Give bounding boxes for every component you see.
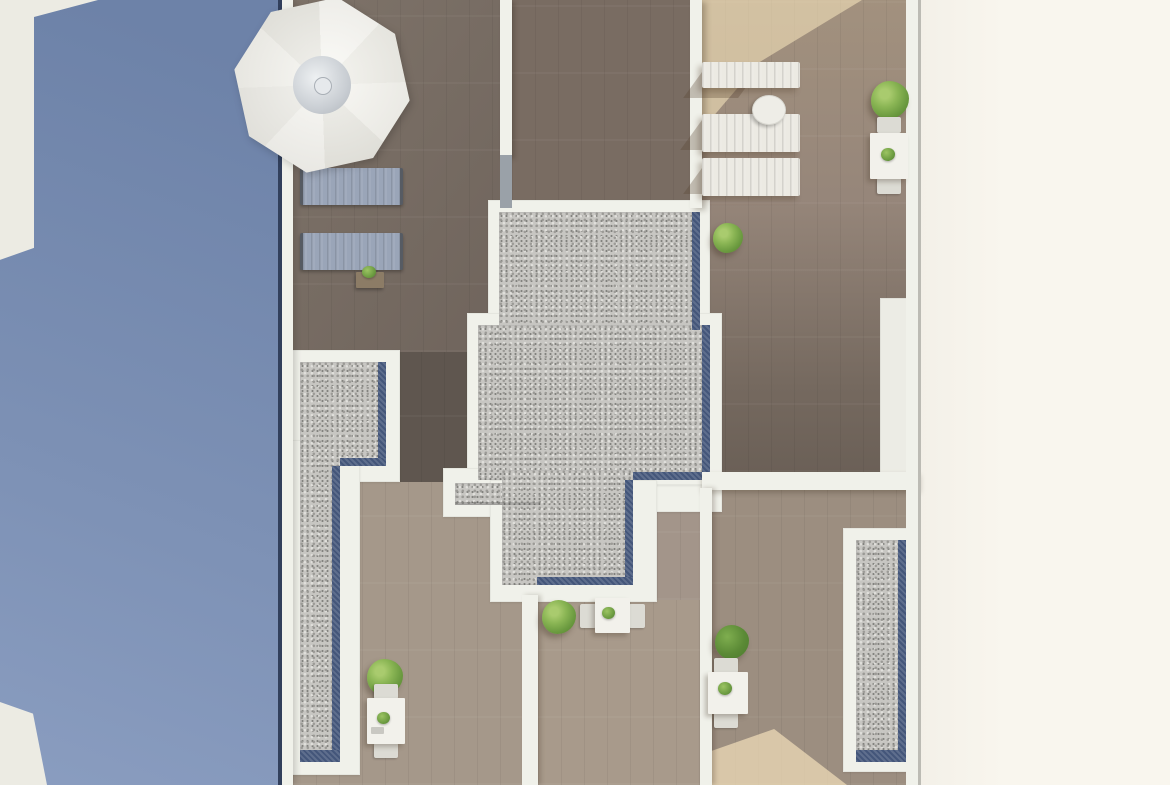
lounger-white-1 [702,62,800,88]
trim-center-bottom-right [625,480,633,580]
trim-left-lower-right [332,466,340,762]
dining-b-tray [371,727,384,734]
terrace-bottom-middle-arm [657,505,702,600]
parasol [233,0,411,174]
gravel-left-upper [300,362,386,466]
dining-d-plant [718,682,732,695]
terrace-top-middle [512,0,690,208]
wall-top-left [500,0,512,157]
gravel-center-middle [478,325,710,480]
trim-left-step [340,458,386,466]
dining-c-chair-left [580,604,596,628]
dining-d-chair-top [714,658,738,673]
wing-shadow-line [455,502,540,505]
dining-c-plant [602,607,615,619]
terrace-mid-left-dark [398,352,470,484]
trim-right-bottom [856,750,906,762]
trim-left-bottom [300,750,340,762]
small-side-table-plant [362,266,376,278]
trim-center-bottom-edge [537,577,633,585]
rooftop-render [0,0,1170,785]
trim-center-step [633,472,710,480]
wall-right-edge-line [918,0,921,785]
dining-b-plant [377,712,390,724]
wall-top-left-shaded [500,155,512,208]
dining-d-chair-bottom [714,713,738,728]
lounger-white-3 [702,158,800,196]
gravel-center-top [499,212,700,330]
dining-b-chair-top [374,684,398,699]
dining-a-chair-top [877,117,901,133]
dining-a-plant [881,148,895,161]
trim-right-edge [898,540,906,752]
lounger-white-2 [702,114,800,152]
dining-b-chair-bottom [374,743,398,758]
dining-a-chair-bottom [877,178,901,194]
wall-horizontal-right [702,472,920,490]
gravel-center-bottom [502,470,633,585]
parasol-pole-icon [314,77,332,95]
dining-c-chair-right [629,604,645,628]
round-side-table [752,95,786,125]
lounger-blue-2 [300,233,403,270]
cream-margin [917,0,1170,785]
trim-left-upper-right [378,362,386,466]
wall-bottom-middle [522,595,538,785]
wall-bottom-right [700,488,712,785]
trim-center-middle-right [702,325,710,476]
trim-center-top-right [692,212,700,330]
